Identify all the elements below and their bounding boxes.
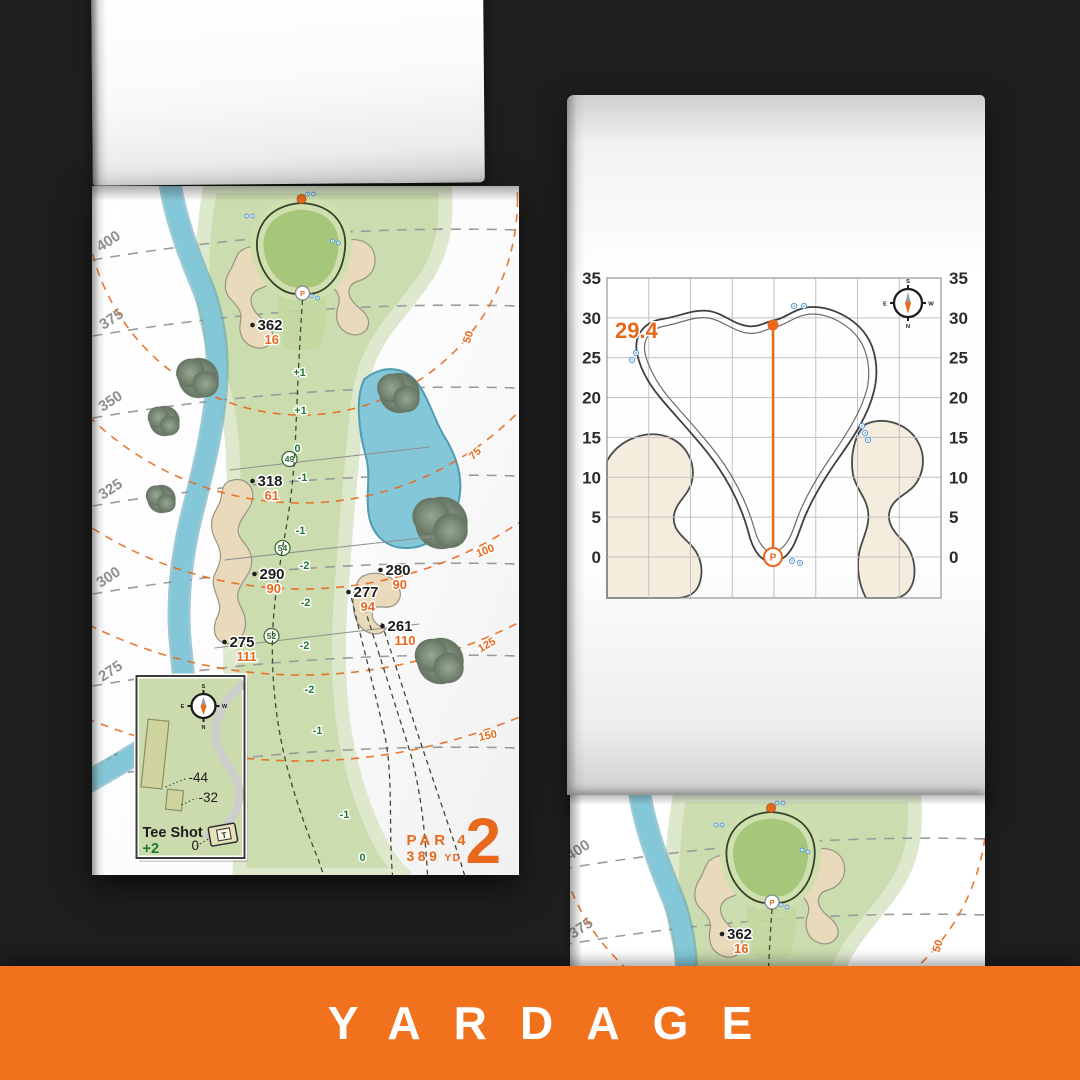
arc-label: 100	[475, 542, 497, 560]
slope-value: -2	[301, 597, 311, 609]
distance-label: 375	[96, 305, 126, 333]
distance-label: 375	[570, 914, 596, 942]
tick-value: 30	[949, 309, 968, 328]
sprinkler-icon	[337, 241, 341, 245]
sprinkler-icon	[312, 192, 316, 196]
yardage-book-photo: 4003753503253002752505075100125150P49545…	[0, 0, 1080, 1080]
carry-marker: 27794	[346, 584, 378, 614]
sub-value: 110	[395, 633, 416, 648]
svg-text:W: W	[928, 301, 934, 307]
distance-label: 350	[95, 387, 125, 415]
sprinkler-icon	[781, 801, 785, 805]
sprinkler-icon	[789, 558, 794, 563]
distance-label: 300	[93, 563, 123, 591]
inset-title: Tee Shot	[143, 825, 203, 841]
arc-label: 75	[467, 445, 484, 462]
svg-text:N: N	[202, 725, 206, 731]
tick-value: 10	[582, 468, 601, 487]
pin-dot	[767, 804, 776, 813]
par-label: PAR 4	[407, 832, 470, 849]
slope-value: +1	[293, 367, 306, 379]
pin-label: P	[769, 898, 774, 907]
tee-offset: -32	[199, 790, 219, 805]
tick-value: 25	[949, 349, 968, 368]
tree-icon	[176, 358, 219, 398]
width-value: 52	[267, 631, 277, 641]
slope-value: -1	[296, 525, 306, 537]
sprinkler-icon	[859, 423, 864, 428]
tree-icon	[148, 406, 180, 436]
tick-value: 0	[949, 548, 958, 567]
slope-value: -1	[340, 809, 350, 821]
yards-unit: YD	[445, 853, 462, 864]
sprinkler-icon	[791, 303, 796, 308]
sprinkler-icon	[245, 214, 249, 218]
inset-score: +2	[143, 841, 160, 857]
arc-label: 150	[478, 728, 498, 744]
bunker	[852, 421, 923, 598]
tick-value: 25	[582, 349, 601, 368]
sprinkler-icon	[316, 296, 320, 300]
tee-box	[165, 789, 183, 811]
green-detail-page: 3530252015105035302520151050P29.4SWNE	[567, 95, 985, 795]
sprinkler-icon	[800, 848, 804, 852]
sub-value: 90	[267, 581, 281, 596]
slope-value: -2	[300, 560, 310, 572]
hole-2-map: 4003753503253002752505075100125150P49545…	[92, 186, 519, 875]
slope-value: -1	[298, 472, 308, 484]
sprinkler-icon	[633, 350, 638, 355]
width-value: 49	[285, 454, 295, 464]
green-depth-chart: 3530252015105035302520151050P29.4SWNE	[567, 95, 985, 795]
tick-value: 5	[949, 508, 958, 527]
sprinkler-icon	[306, 192, 310, 196]
tick-value: 0	[592, 548, 601, 567]
sprinkler-icon	[714, 823, 718, 827]
pin-label: P	[770, 553, 777, 564]
axis-ticks-left: 35302520151050	[582, 269, 601, 567]
green-edge-outline	[644, 314, 868, 552]
sprinkler-icon	[779, 903, 783, 907]
slope-value: -2	[300, 640, 310, 652]
sub-value: 111	[237, 649, 257, 664]
distance-label: 275	[95, 657, 125, 685]
svg-text:S: S	[906, 279, 910, 285]
slope-value: 0	[359, 852, 365, 864]
sub-value: 94	[361, 599, 376, 614]
pin-label: P	[300, 289, 305, 298]
hole-info: PAR 4389YD2	[407, 805, 502, 875]
flipped-blank-page	[91, 0, 485, 186]
yards-value: 389	[407, 848, 441, 864]
distance-label: 325	[95, 475, 125, 503]
sub-value: 16	[265, 332, 279, 347]
tick-value: 35	[582, 269, 601, 288]
sub-value: 16	[734, 941, 748, 956]
tick-value: 10	[949, 468, 968, 487]
sub-value: 90	[393, 577, 407, 592]
slope-value: +1	[294, 405, 307, 417]
hole-map-page: 4003753503253002752505075100125150P49545…	[92, 186, 519, 875]
yardage-banner: YARDAGE	[0, 966, 1080, 1080]
sprinkler-icon	[251, 214, 255, 218]
tick-value: 15	[582, 428, 601, 447]
tick-value: 20	[949, 389, 968, 408]
slope-value: -2	[305, 684, 315, 696]
next-page-preview: 4003753503253002752505075100125150P49545…	[570, 795, 985, 966]
tick-value: 5	[592, 508, 601, 527]
svg-text:W: W	[222, 704, 228, 710]
front-dot	[768, 320, 779, 331]
green-bunkers	[607, 421, 923, 598]
hole-number: 2	[466, 805, 502, 875]
tick-value: 35	[949, 269, 968, 288]
axis-ticks-right: 35302520151050	[949, 269, 968, 567]
sprinkler-icon	[775, 801, 779, 805]
sprinkler-icon	[862, 430, 867, 435]
arc-label: 125	[476, 636, 498, 656]
sprinkler-icon	[865, 437, 870, 442]
banner-label: YARDAGE	[328, 996, 786, 1050]
arc-label: 50	[931, 938, 946, 953]
svg-text:N: N	[906, 324, 910, 330]
sprinkler-icon	[797, 560, 802, 565]
tee-marker-icon: T	[208, 823, 238, 846]
sprinkler-icon	[310, 294, 314, 298]
green-compass-icon: SWNE	[883, 279, 934, 330]
svg-text:E: E	[181, 704, 185, 710]
distance-label: 400	[570, 836, 593, 864]
sub-value: 61	[265, 488, 279, 503]
sprinkler-icon	[806, 850, 810, 854]
depth-value: 29.4	[615, 318, 659, 343]
sprinkler-icon	[331, 239, 335, 243]
tree-icon	[146, 485, 176, 513]
slope-value: 0	[294, 443, 300, 455]
tick-value: 30	[582, 309, 601, 328]
distance-label: 400	[93, 227, 123, 255]
hole-2-map-preview: 4003753503253002752505075100125150P49545…	[570, 795, 985, 966]
sprinkler-icon	[801, 303, 806, 308]
sprinkler-icon	[720, 823, 724, 827]
arc-label: 50	[461, 329, 476, 344]
tick-value: 15	[949, 428, 968, 447]
tee-offset: -44	[189, 770, 209, 785]
pin-dot	[297, 195, 306, 204]
bunker	[607, 434, 702, 598]
tree-icon	[415, 638, 464, 684]
slope-value: -1	[313, 725, 323, 737]
sprinkler-icon	[785, 905, 789, 909]
tee-shot-inset: -44-320TSWNETee Shot+2	[137, 676, 248, 862]
tick-value: 20	[582, 389, 601, 408]
svg-text:S: S	[202, 684, 206, 690]
sprinkler-icon	[629, 357, 634, 362]
svg-text:E: E	[883, 301, 887, 307]
